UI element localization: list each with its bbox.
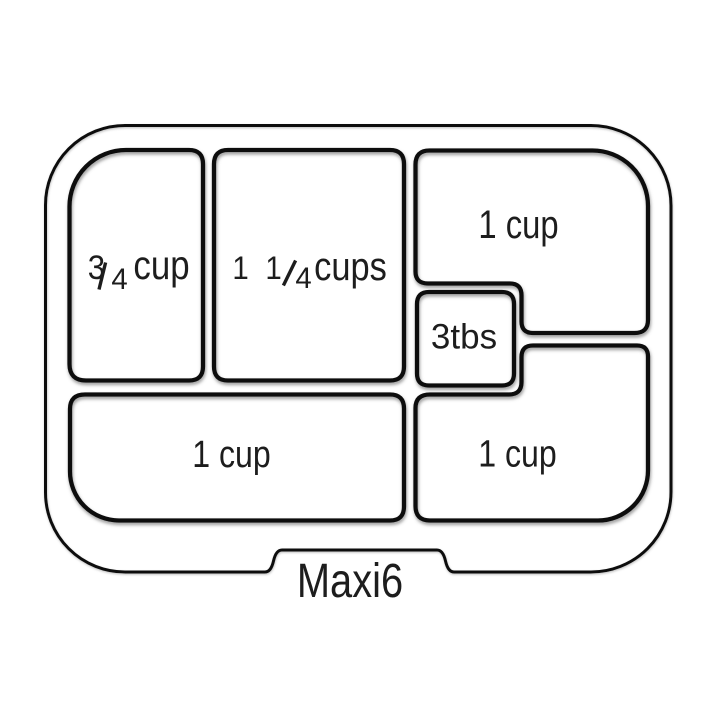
svg-text:Maxi6: Maxi6: [297, 555, 403, 608]
svg-text:cup: cup: [133, 243, 189, 288]
svg-text:4: 4: [111, 263, 127, 296]
svg-text:cups: cups: [314, 244, 387, 289]
svg-text:1 cup: 1 cup: [478, 433, 557, 475]
svg-text:4: 4: [295, 262, 311, 295]
svg-text:1 cup: 1 cup: [192, 434, 271, 476]
svg-text:1 cup: 1 cup: [478, 202, 558, 247]
svg-text:1: 1: [232, 250, 248, 286]
svg-text:3tbs: 3tbs: [431, 318, 497, 357]
svg-text:1: 1: [265, 250, 281, 286]
